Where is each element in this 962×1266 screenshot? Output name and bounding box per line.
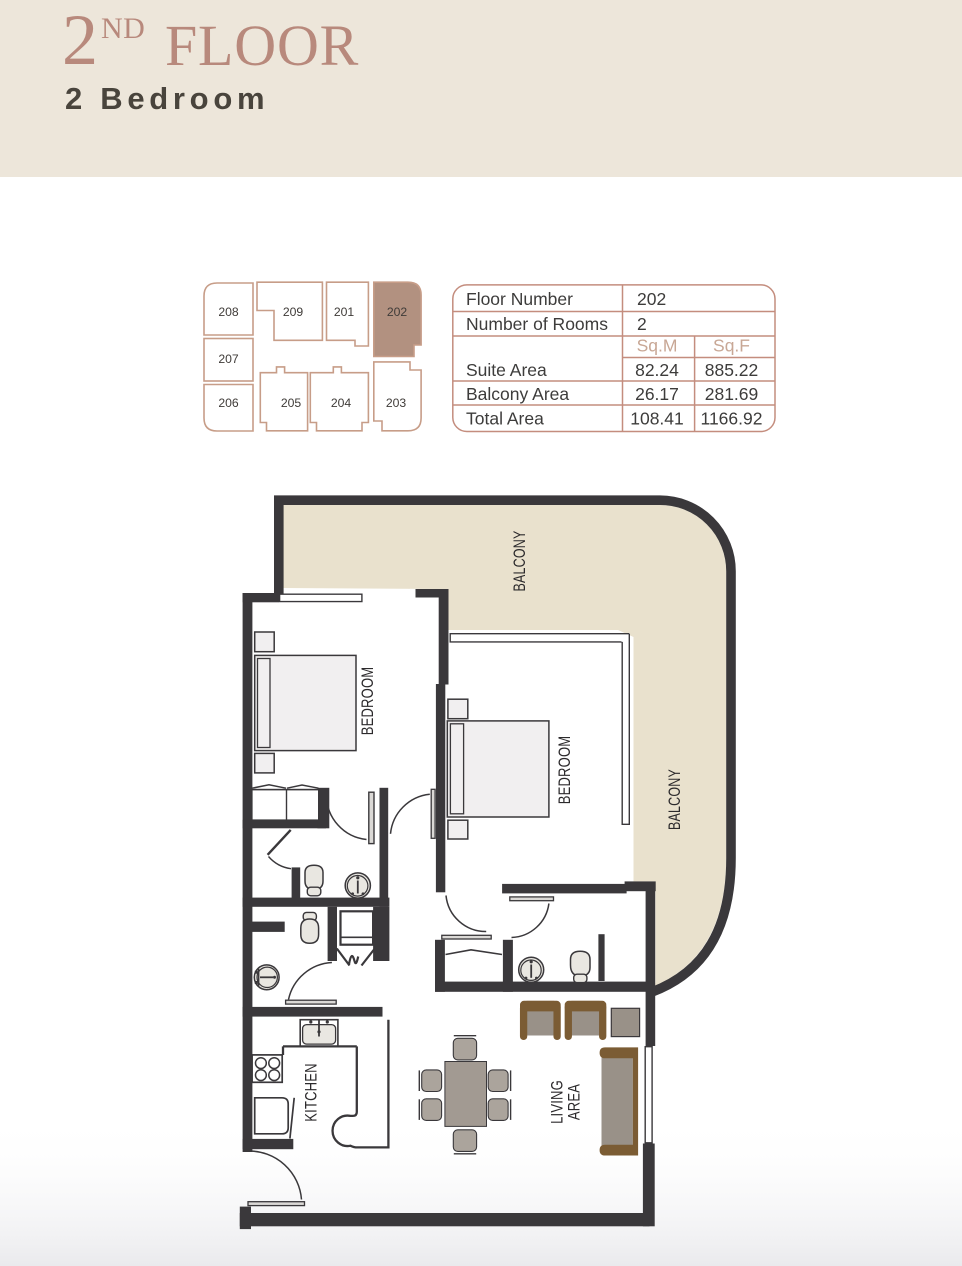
svg-text:BEDROOM: BEDROOM bbox=[555, 736, 574, 805]
svg-text:204: 204 bbox=[331, 396, 352, 410]
svg-text:Floor Number: Floor Number bbox=[466, 289, 573, 309]
svg-text:1166.92: 1166.92 bbox=[701, 409, 763, 429]
svg-text:209: 209 bbox=[283, 305, 304, 319]
svg-text:82.24: 82.24 bbox=[635, 360, 679, 380]
svg-text:FLOOR: FLOOR bbox=[165, 13, 359, 78]
svg-text:Sq.F: Sq.F bbox=[713, 336, 750, 356]
svg-text:203: 203 bbox=[386, 396, 407, 410]
svg-text:108.41: 108.41 bbox=[630, 409, 684, 429]
svg-text:2 Bedroom: 2 Bedroom bbox=[65, 81, 269, 116]
svg-text:2: 2 bbox=[637, 314, 647, 334]
svg-text:202: 202 bbox=[637, 289, 666, 309]
svg-text:2: 2 bbox=[62, 0, 98, 80]
svg-text:Number of Rooms: Number of Rooms bbox=[466, 314, 608, 334]
svg-text:26.17: 26.17 bbox=[635, 384, 679, 404]
svg-text:Sq.M: Sq.M bbox=[637, 336, 678, 356]
svg-text:206: 206 bbox=[218, 396, 239, 410]
svg-text:BALCONY: BALCONY bbox=[667, 769, 685, 830]
svg-text:205: 205 bbox=[281, 396, 302, 410]
svg-text:ND: ND bbox=[101, 12, 145, 45]
svg-text:202: 202 bbox=[387, 305, 408, 319]
svg-text:207: 207 bbox=[218, 352, 239, 366]
svg-text:BEDROOM: BEDROOM bbox=[358, 667, 377, 736]
svg-text:Total Area: Total Area bbox=[466, 409, 544, 429]
svg-text:KITCHEN: KITCHEN bbox=[302, 1063, 321, 1121]
svg-text:BALCONY: BALCONY bbox=[512, 530, 530, 591]
svg-text:208: 208 bbox=[218, 305, 239, 319]
svg-text:281.69: 281.69 bbox=[705, 384, 759, 404]
svg-text:201: 201 bbox=[334, 305, 355, 319]
svg-text:Suite Area: Suite Area bbox=[466, 360, 547, 380]
svg-text:AREA: AREA bbox=[565, 1083, 584, 1120]
svg-text:Balcony Area: Balcony Area bbox=[466, 384, 569, 404]
svg-text:885.22: 885.22 bbox=[705, 360, 759, 380]
